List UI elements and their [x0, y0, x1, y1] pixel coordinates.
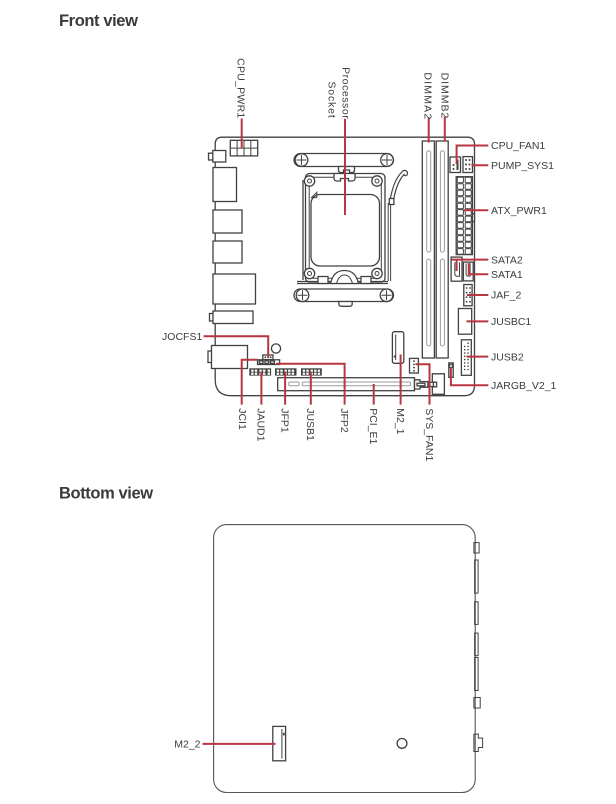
svg-text:SYS_FAN1: SYS_FAN1: [423, 408, 435, 461]
svg-text:DIMMB2: DIMMB2: [438, 73, 450, 120]
svg-text:JAF_2: JAF_2: [491, 290, 522, 302]
svg-text:M2_1: M2_1: [394, 408, 406, 434]
svg-text:M2_2: M2_2: [174, 739, 200, 751]
svg-text:Socket: Socket: [325, 81, 337, 118]
svg-text:Processor: Processor: [340, 67, 352, 119]
svg-text:Front view: Front view: [59, 12, 138, 30]
svg-text:ATX_PWR1: ATX_PWR1: [491, 205, 547, 217]
svg-text:JUSB2: JUSB2: [491, 351, 524, 363]
svg-text:CPU_PWR1: CPU_PWR1: [234, 58, 246, 118]
svg-text:JFP2: JFP2: [338, 408, 350, 433]
svg-text:JCI1: JCI1: [236, 408, 248, 430]
svg-text:SATA1: SATA1: [491, 269, 523, 281]
svg-text:JUSB1: JUSB1: [304, 408, 316, 441]
svg-text:JARGB_V2_1: JARGB_V2_1: [491, 380, 557, 392]
svg-text:JAUD1: JAUD1: [255, 408, 267, 441]
svg-text:JFP1: JFP1: [278, 408, 290, 433]
svg-text:CPU_FAN1: CPU_FAN1: [491, 140, 545, 152]
svg-text:Bottom view: Bottom view: [59, 485, 153, 503]
svg-text:JUSBC1: JUSBC1: [491, 316, 531, 328]
svg-text:SATA2: SATA2: [491, 254, 523, 266]
svg-text:DIMMA2: DIMMA2: [422, 72, 434, 120]
svg-text:JOCFS1: JOCFS1: [162, 331, 202, 343]
svg-text:PCI_E1: PCI_E1: [367, 408, 379, 444]
svg-text:PUMP_SYS1: PUMP_SYS1: [491, 160, 554, 172]
